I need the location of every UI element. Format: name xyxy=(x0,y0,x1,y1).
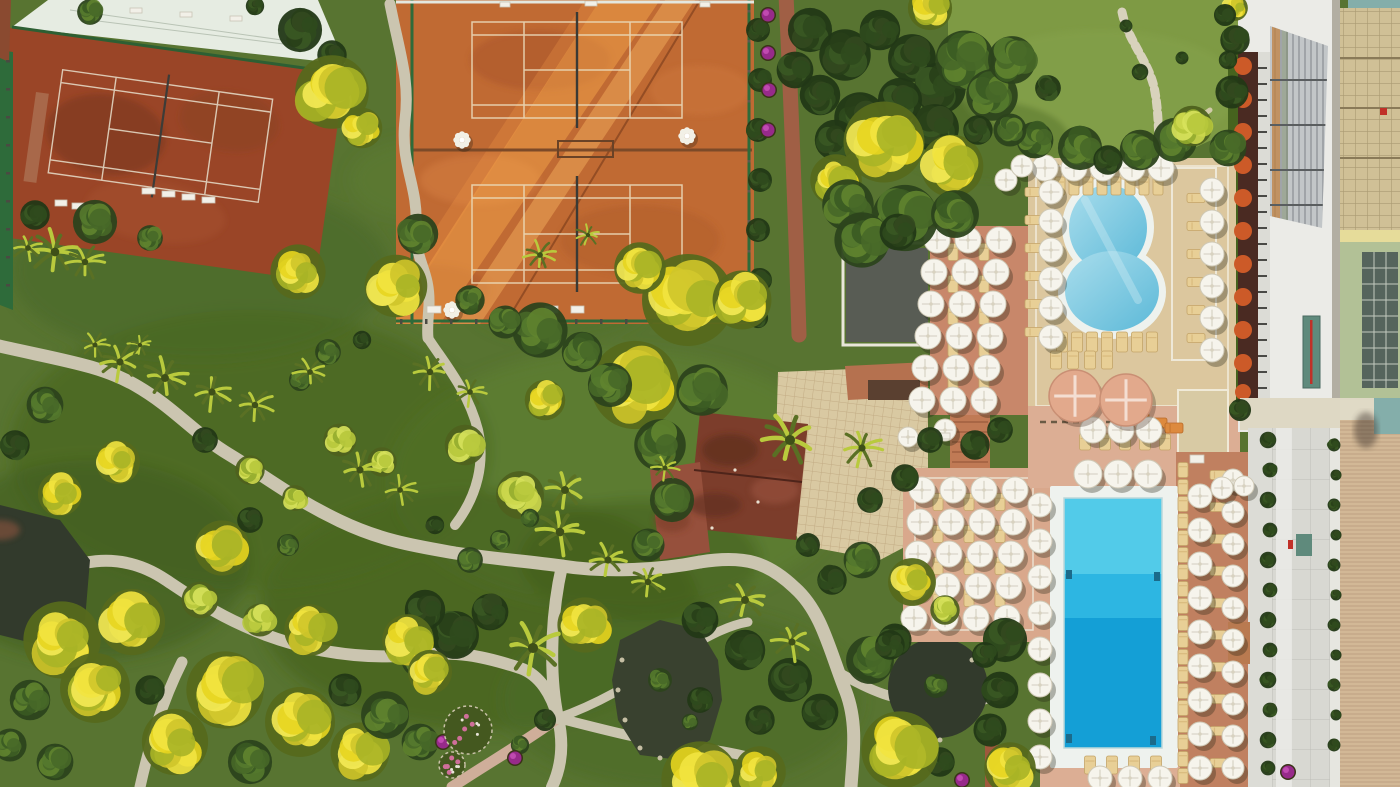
lounger xyxy=(1178,650,1188,665)
umbrella-pole xyxy=(991,302,995,306)
umbrella-pole xyxy=(1231,766,1235,770)
lounger xyxy=(1087,332,1098,352)
lounger xyxy=(1178,599,1188,614)
tree-dark xyxy=(1328,619,1341,632)
tree-dark xyxy=(1328,559,1341,572)
lounger xyxy=(1178,480,1188,495)
umbrella-pole xyxy=(982,398,986,402)
fence-post xyxy=(748,10,751,13)
tree-dark xyxy=(328,673,361,706)
tree-lime xyxy=(235,455,264,484)
tree-dark xyxy=(987,417,1013,443)
tree-dark xyxy=(1132,64,1149,81)
tree-dark xyxy=(857,487,883,513)
umbrella-pole xyxy=(920,398,924,402)
umbrella-pole xyxy=(932,270,936,274)
umbrella-pole xyxy=(943,428,947,432)
tree-dark xyxy=(1328,499,1341,512)
umbrella-pole xyxy=(1013,488,1017,492)
bench xyxy=(202,197,215,203)
umbrella-pole xyxy=(1198,664,1202,668)
lounger xyxy=(1178,735,1188,750)
umbrella-pole xyxy=(985,366,989,370)
hotel-buildings-top xyxy=(1234,0,1400,432)
tree-green xyxy=(228,740,272,784)
tree-green xyxy=(562,332,602,372)
fence-post xyxy=(575,319,578,324)
umbrella-pole xyxy=(1038,539,1042,543)
fence-post xyxy=(425,319,428,324)
purple-flower-bush xyxy=(507,750,523,766)
lounger xyxy=(1178,548,1188,563)
tree-dark xyxy=(745,705,774,734)
hedge-gutter xyxy=(1330,428,1340,787)
umbrella-pole xyxy=(954,366,958,370)
lounger xyxy=(1187,334,1205,343)
umbrella-pole xyxy=(1231,734,1235,738)
purple-flower-bush xyxy=(760,45,776,61)
garden-path xyxy=(562,562,700,570)
tree-yellow xyxy=(342,108,383,148)
umbrella-pole xyxy=(1086,472,1090,476)
lounger xyxy=(1178,684,1188,699)
umbrella-pole xyxy=(997,238,1001,242)
tree-green xyxy=(650,478,694,522)
tree-yellow xyxy=(186,651,264,728)
umbrella-pole xyxy=(1038,683,1042,687)
lounger xyxy=(1178,701,1188,716)
flowerbed xyxy=(439,752,465,778)
tree-lime xyxy=(367,447,396,476)
bench xyxy=(130,8,142,13)
tree-dark xyxy=(1328,679,1341,692)
bench xyxy=(182,194,195,200)
bench xyxy=(230,16,242,21)
rectangular-pool xyxy=(1050,486,1178,768)
bench xyxy=(180,12,192,17)
tree-yellow xyxy=(525,380,565,420)
building-gap xyxy=(1332,0,1340,432)
tree-dark xyxy=(135,675,164,704)
purple-flower-bush xyxy=(761,82,777,98)
tree-green xyxy=(27,387,64,424)
umbrella-pole xyxy=(1198,528,1202,532)
fence-post xyxy=(6,172,10,175)
tree-dark xyxy=(1263,583,1278,598)
tree-dark xyxy=(353,331,371,349)
tree-yellow xyxy=(888,558,936,606)
roof-speck xyxy=(733,468,736,471)
tree-dark xyxy=(534,709,556,731)
tree-dark xyxy=(1260,492,1277,509)
tree-dark xyxy=(1093,145,1122,174)
umbrella-pole xyxy=(1049,190,1053,194)
umbrella-pole xyxy=(1210,220,1214,224)
umbrella-pole xyxy=(994,270,998,274)
umbrella-pole xyxy=(1020,164,1024,168)
umbrella-pole xyxy=(1049,277,1053,281)
rect-pool-mid-band xyxy=(1064,574,1162,618)
tree-yellow xyxy=(265,687,335,757)
tree-dark xyxy=(917,427,943,453)
bench xyxy=(162,191,175,197)
bench xyxy=(142,188,155,194)
tree-dark xyxy=(20,200,49,229)
umbrella-pole xyxy=(1009,552,1013,556)
tree-yellow xyxy=(365,255,428,318)
lounger xyxy=(1132,332,1143,352)
umbrella-pole xyxy=(978,552,982,556)
umbrella-pole xyxy=(1049,248,1053,252)
lounger xyxy=(1178,769,1188,784)
tree-dark xyxy=(973,713,1006,746)
bench xyxy=(571,306,584,313)
umbrella-pole xyxy=(1231,606,1235,610)
teal-vent xyxy=(1296,534,1312,556)
tree-dark xyxy=(725,630,765,670)
rock xyxy=(638,746,643,751)
tree-dark xyxy=(237,507,263,533)
fence-post xyxy=(625,319,628,324)
tree-dark xyxy=(746,218,770,242)
umbrella-pole xyxy=(1049,219,1053,223)
tree-green xyxy=(676,364,728,416)
rock xyxy=(938,738,943,743)
tree-dark xyxy=(1260,732,1277,749)
lounger xyxy=(1178,531,1188,546)
bench xyxy=(700,2,710,7)
tree-dark xyxy=(1261,761,1276,776)
bench xyxy=(1190,455,1204,463)
skylight xyxy=(1362,252,1398,388)
lounger xyxy=(1072,332,1083,352)
hotel-buildings-bottom xyxy=(1228,398,1400,787)
fence-post xyxy=(450,319,453,324)
tree-green xyxy=(512,302,567,357)
fence-post xyxy=(600,319,603,324)
fence-post xyxy=(748,40,751,43)
umbrella-pole xyxy=(1158,776,1162,780)
umbrella-pole xyxy=(1038,647,1042,651)
umbrella-pole xyxy=(926,334,930,338)
tree-green xyxy=(924,674,948,698)
aerial-photo-canvas xyxy=(0,0,1400,787)
lounger-orange xyxy=(1165,423,1183,433)
umbrella-pole xyxy=(1198,732,1202,736)
fence-post xyxy=(748,190,751,193)
umbrella-pole xyxy=(988,334,992,338)
lounger xyxy=(1178,616,1188,631)
tree-dark xyxy=(802,694,839,731)
fence-post xyxy=(6,284,10,287)
umbrella-pole xyxy=(1231,670,1235,674)
tree-green xyxy=(631,528,664,561)
rock xyxy=(658,756,663,761)
purple-flower-bush xyxy=(1280,764,1296,780)
purple-flower-bush xyxy=(760,7,776,23)
umbrella-pole xyxy=(982,488,986,492)
umbrella-pole xyxy=(1231,478,1235,482)
yellow-band xyxy=(1340,230,1400,242)
umbrella-pole xyxy=(951,398,955,402)
umbrella-pole xyxy=(980,520,984,524)
tree-dark xyxy=(682,602,719,639)
umbrella-pole xyxy=(1098,776,1102,780)
umbrella-pole xyxy=(918,520,922,524)
tree-yellow xyxy=(142,709,208,775)
tree-green xyxy=(277,534,299,556)
umbrella-pole xyxy=(912,616,916,620)
tree-dark xyxy=(963,115,992,144)
umbrella-pole xyxy=(1231,510,1235,514)
tan-grid-roof xyxy=(1340,8,1400,230)
umbrella-pole xyxy=(1198,698,1202,702)
tree-green xyxy=(137,225,163,251)
umbrella-pole xyxy=(1049,306,1053,310)
umbrella-pole xyxy=(1198,494,1202,498)
bench xyxy=(500,2,510,7)
tree-yellow xyxy=(270,244,325,299)
flowerbed xyxy=(444,706,492,754)
tree-dark xyxy=(1263,643,1278,658)
tree-green xyxy=(10,680,50,720)
tree-green xyxy=(37,744,74,781)
fence-post xyxy=(400,319,403,324)
umbrella-pole xyxy=(1210,348,1214,352)
umbrella-pole xyxy=(947,552,951,556)
umbrella-pole xyxy=(963,270,967,274)
umbrella-pole xyxy=(935,238,939,242)
tree-lime xyxy=(930,595,959,624)
umbrella-pole xyxy=(966,238,970,242)
rect-pool-deep xyxy=(1064,618,1162,748)
umbrella-pole xyxy=(1231,638,1235,642)
tree-dark xyxy=(777,52,814,89)
umbrella-pole xyxy=(960,302,964,306)
umbrella-pole xyxy=(1210,188,1214,192)
umbrella-pole xyxy=(1038,575,1042,579)
roof-speck xyxy=(756,500,759,503)
tree-yellow xyxy=(861,711,938,787)
tree-green xyxy=(455,285,484,314)
tree-dark xyxy=(1328,739,1341,752)
tree-dark xyxy=(1214,4,1236,26)
lounger xyxy=(1102,351,1113,369)
tree-green xyxy=(682,714,699,731)
fence-post xyxy=(748,250,751,253)
lounger xyxy=(1068,351,1079,369)
umbrella-pole xyxy=(957,334,961,338)
umbrella-pole xyxy=(923,366,927,370)
bench xyxy=(55,200,67,206)
tree-dark xyxy=(1330,709,1341,720)
tree-dark xyxy=(472,593,509,630)
umbrella-pole xyxy=(1007,584,1011,588)
tree-dark xyxy=(1263,703,1278,718)
rock xyxy=(616,688,621,693)
lounger xyxy=(1178,752,1188,767)
fence-post xyxy=(6,200,10,203)
tree-dark xyxy=(1330,649,1341,660)
lounger xyxy=(1178,565,1188,580)
striped-roof xyxy=(1340,418,1400,787)
lounger xyxy=(1178,463,1188,478)
tree-dark xyxy=(687,687,713,713)
umbrella-pole xyxy=(945,584,949,588)
umbrella-pole xyxy=(974,616,978,620)
tree-dark xyxy=(880,214,917,251)
tree-dark xyxy=(1330,469,1341,480)
tree-dark xyxy=(1263,523,1278,538)
umbrella-pole xyxy=(1146,472,1150,476)
tree-green xyxy=(457,547,483,573)
tree-dark xyxy=(1330,589,1341,600)
panel-ridge xyxy=(1276,428,1292,787)
rock xyxy=(623,718,628,723)
tree-green xyxy=(315,339,341,365)
umbrella-pole xyxy=(1242,484,1246,488)
lounger xyxy=(1178,667,1188,682)
umbrella-pole xyxy=(1210,316,1214,320)
bench xyxy=(427,306,441,313)
tree-dark xyxy=(891,464,919,492)
lounger xyxy=(1178,718,1188,733)
fence-post xyxy=(6,88,10,91)
tree-dark xyxy=(1260,612,1277,629)
tree-dark xyxy=(748,168,772,192)
tree-green xyxy=(931,190,979,238)
umbrella-pole xyxy=(1198,562,1202,566)
umbrella-pole xyxy=(1198,596,1202,600)
red-marker xyxy=(1380,108,1387,115)
fence-post xyxy=(475,319,478,324)
tree-dark xyxy=(1220,25,1249,54)
lounger xyxy=(1085,351,1096,369)
tree-green xyxy=(648,668,672,692)
fig8-lower-lobe xyxy=(1065,251,1159,331)
tree-lime xyxy=(182,582,219,619)
umbrella-pole xyxy=(1210,284,1214,288)
tree-green xyxy=(588,363,632,407)
tree-dark xyxy=(1260,552,1277,569)
umbrella-pole xyxy=(949,520,953,524)
fence-post xyxy=(6,228,10,231)
umbrella-pole xyxy=(1049,335,1053,339)
tree-dark xyxy=(768,658,812,702)
tree-dark xyxy=(1120,20,1133,33)
tree-yellow xyxy=(557,597,612,652)
lounger xyxy=(1178,582,1188,597)
tree-green xyxy=(73,200,117,244)
tree-green xyxy=(844,542,881,579)
umbrella-pole xyxy=(920,488,924,492)
umbrella-pole xyxy=(1198,630,1202,634)
tree-dark xyxy=(1215,75,1248,108)
umbrella-pole xyxy=(1004,178,1008,182)
rock xyxy=(620,658,625,663)
umbrella-pole xyxy=(1231,702,1235,706)
roof-speck xyxy=(710,526,713,529)
lounger xyxy=(1147,332,1158,352)
bench xyxy=(585,1,597,6)
umbrella-pole xyxy=(976,584,980,588)
umbrella-pole xyxy=(1043,166,1047,170)
tree-dark xyxy=(278,8,322,52)
aerial-resort-photo xyxy=(0,0,1400,787)
lounger xyxy=(1178,514,1188,529)
fence-post xyxy=(748,70,751,73)
tree-dark xyxy=(972,642,998,668)
umbrella-pole xyxy=(1038,503,1042,507)
umbrella-pole xyxy=(1091,428,1095,432)
tree-green xyxy=(490,530,510,550)
lounger xyxy=(1178,633,1188,648)
fence-post xyxy=(6,256,10,259)
tree-lime xyxy=(323,423,356,456)
umbrella-pole xyxy=(1038,755,1042,759)
fence-post xyxy=(6,144,10,147)
red-window-line xyxy=(1310,320,1313,384)
umbrella-pole xyxy=(929,302,933,306)
tree-green xyxy=(993,113,1026,146)
lounger xyxy=(1178,497,1188,512)
purple-flower-bush xyxy=(760,122,776,138)
fence-post xyxy=(6,60,10,63)
soot-stain xyxy=(1354,412,1378,448)
tree-dark xyxy=(1219,51,1237,69)
umbrella-pole xyxy=(1231,542,1235,546)
umbrella-pole xyxy=(1147,428,1151,432)
tree-dark xyxy=(1176,52,1189,65)
tree-dark xyxy=(192,427,218,453)
umbrella-pole xyxy=(1011,520,1015,524)
umbrella-pole xyxy=(1220,486,1224,490)
walkway-ticks xyxy=(1258,68,1267,388)
tree-yellow xyxy=(96,440,140,484)
umbrella-pole xyxy=(1210,252,1214,256)
umbrella-pole xyxy=(1198,766,1202,770)
tree-green xyxy=(488,305,521,338)
tree-dark xyxy=(960,430,989,459)
umbrella-pole xyxy=(906,435,910,439)
tree-green xyxy=(361,691,409,739)
fence-post xyxy=(6,116,10,119)
lounger xyxy=(1117,332,1128,352)
umbrella-pole xyxy=(916,552,920,556)
tree-dark xyxy=(1330,529,1341,540)
umbrella-pole xyxy=(1128,776,1132,780)
tree-yellow xyxy=(60,653,130,723)
tree-yellow xyxy=(38,472,82,516)
tree-dark xyxy=(1229,399,1251,421)
umbrella-pole xyxy=(1231,574,1235,578)
umbrella-pole xyxy=(1159,166,1163,170)
umbrella-pole xyxy=(1116,472,1120,476)
umbrella-pole xyxy=(1038,611,1042,615)
umbrella-pole xyxy=(951,488,955,492)
umbrella-pole xyxy=(1038,719,1042,723)
tree-yellow xyxy=(713,271,772,330)
tree-yellow xyxy=(614,242,666,294)
fence-post xyxy=(748,160,751,163)
fence-post xyxy=(748,100,751,103)
tree-dark xyxy=(1260,432,1277,449)
red-vent xyxy=(1288,540,1293,549)
lounger xyxy=(1102,332,1113,352)
